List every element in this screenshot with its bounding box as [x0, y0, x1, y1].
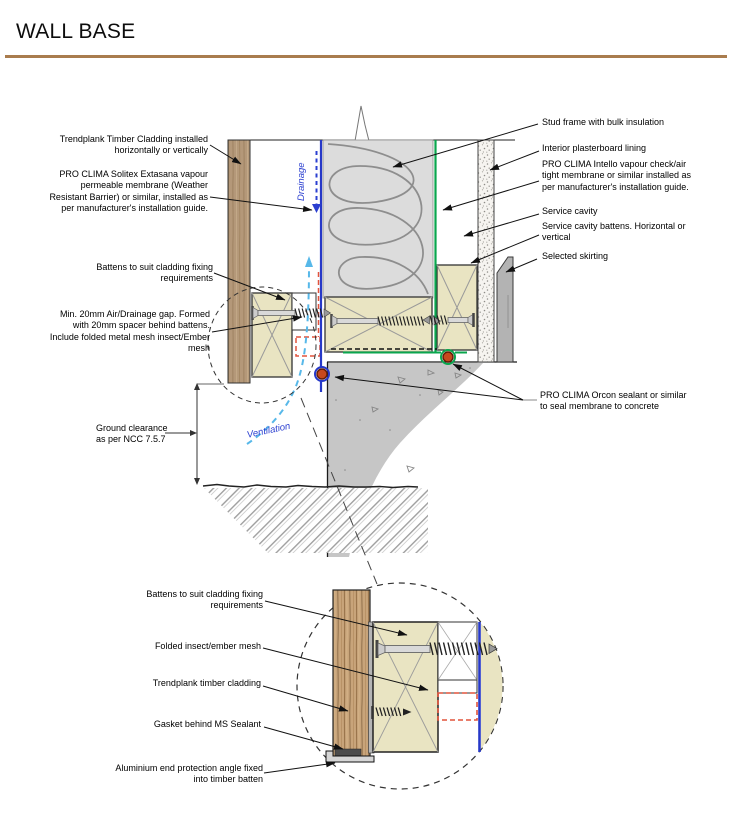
orcon-sealant-dot-left	[317, 369, 327, 379]
label-battens: Battens to suit cladding fixing requirem…	[63, 262, 213, 285]
detail-service-batten-outline	[438, 622, 477, 693]
skirting	[497, 257, 513, 362]
label-detail-gasket: Gasket behind MS Sealant	[101, 719, 261, 730]
timber-cladding	[228, 140, 250, 383]
label-plasterboard: Interior plasterboard lining	[542, 143, 722, 154]
label-timber-cladding: Trendplank Timber Cladding installed hor…	[38, 134, 208, 157]
label-service-cavity-battens: Service cavity battens. Horizontal or ve…	[542, 221, 732, 244]
label-orcon-sealant: PRO CLIMA Orcon sealant or similar to se…	[540, 390, 720, 413]
label-intello-membrane: PRO CLIMA Intello vapour check/air tight…	[542, 159, 727, 193]
label-stud-frame: Stud frame with bulk insulation	[542, 117, 722, 128]
orcon-sealant-dot-right	[443, 352, 453, 362]
cladding-batten	[252, 293, 292, 377]
label-detail-battens: Battens to suit cladding fixing requirem…	[103, 589, 263, 612]
stud-insulation	[323, 140, 433, 298]
label-ground-clearance: Ground clearance as per NCC 7.5.7	[96, 423, 206, 446]
label-drainage-flow: Drainage	[296, 162, 307, 201]
detail-mesh-indicator	[438, 693, 477, 720]
label-service-cavity: Service cavity	[542, 206, 702, 217]
label-detail-cladding: Trendplank timber cladding	[101, 678, 261, 689]
label-skirting: Selected skirting	[542, 251, 702, 262]
label-detail-mesh: Folded insect/ember mesh	[101, 641, 261, 652]
service-cavity-batten	[437, 265, 477, 350]
break-line	[355, 106, 369, 141]
label-solitex-membrane: PRO CLIMA Solitex Extasana vapour permea…	[23, 169, 208, 215]
detail-batten	[373, 622, 438, 752]
label-detail-aluminium-angle: Aluminium end protection angle fixed int…	[73, 763, 263, 786]
plasterboard	[478, 140, 494, 362]
drainage-arrow	[312, 151, 321, 213]
label-drainage-gap: Min. 20mm Air/Drainage gap. Formed with …	[25, 309, 210, 355]
ground	[203, 485, 428, 554]
